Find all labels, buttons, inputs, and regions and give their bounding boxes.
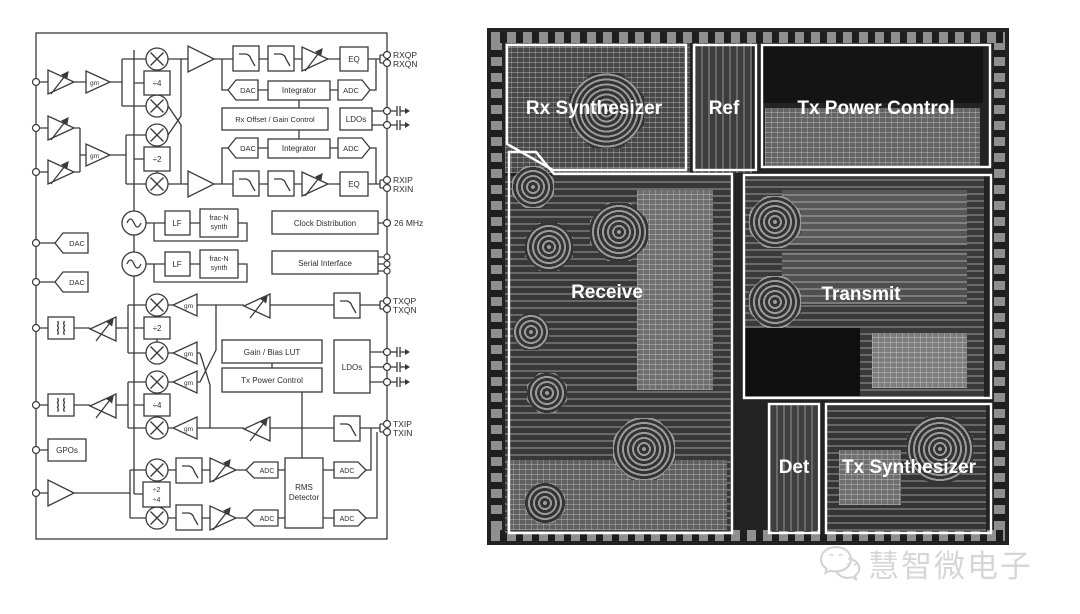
clock-distribution-block: Clock Distribution bbox=[272, 211, 378, 234]
divider-div2: ÷2 bbox=[144, 317, 170, 339]
svg-text:LF: LF bbox=[172, 260, 181, 269]
lowpass-filter-icon bbox=[334, 416, 360, 441]
svg-text:ADC: ADC bbox=[340, 468, 355, 475]
eq-block: EQ bbox=[340, 172, 368, 196]
lowpass-filter-icon bbox=[176, 505, 202, 530]
svg-text:ADC: ADC bbox=[340, 516, 355, 523]
svg-text:DAC: DAC bbox=[69, 278, 85, 287]
mixer-icon bbox=[146, 371, 168, 393]
vga-icon bbox=[90, 394, 116, 418]
svg-text:ADC: ADC bbox=[343, 86, 359, 95]
svg-text:Clock Distribution: Clock Distribution bbox=[294, 219, 356, 228]
lowpass-filter-icon bbox=[176, 458, 202, 483]
capacitor-icon bbox=[390, 106, 410, 116]
svg-text:Serial Interface: Serial Interface bbox=[298, 259, 352, 268]
watermark-text: 慧智微电子 bbox=[868, 541, 1033, 586]
svg-text:gm: gm bbox=[184, 351, 193, 358]
gpos-block: GPOs bbox=[48, 439, 86, 461]
mixer-icon bbox=[146, 48, 168, 70]
vga-icon bbox=[210, 506, 236, 530]
dac-block: DAC DAC bbox=[55, 233, 88, 292]
svg-text:÷2: ÷2 bbox=[153, 155, 162, 164]
die-region-overlay: Rx Synthesizer Ref Tx Power Control Rece… bbox=[487, 28, 1009, 545]
dac-block: DAC bbox=[228, 138, 258, 158]
mixer-icon bbox=[146, 459, 168, 481]
rx-offset-gain-control-block: Rx Offset / Gain Control bbox=[222, 108, 328, 130]
gain-bias-lut-block: Gain / Bias LUT bbox=[222, 340, 322, 363]
ldos-block: LDOs bbox=[334, 340, 370, 393]
vga-icon bbox=[90, 317, 116, 341]
lowpass-filter-icon bbox=[334, 293, 360, 318]
adc-block: ADC ADC bbox=[246, 462, 278, 526]
svg-text:ADC: ADC bbox=[260, 468, 275, 475]
svg-text:DAC: DAC bbox=[240, 86, 256, 95]
label-ref: Ref bbox=[709, 98, 740, 119]
label-transmit: Transmit bbox=[821, 284, 901, 305]
eq-block: EQ bbox=[340, 47, 368, 71]
tx-power-control-block: Tx Power Control bbox=[222, 368, 322, 392]
vga-icon bbox=[244, 294, 270, 318]
svg-text:Gain / Bias LUT: Gain / Bias LUT bbox=[244, 348, 301, 357]
divider-div2: ÷2 bbox=[144, 147, 170, 171]
lowpass-filter-icon bbox=[233, 171, 259, 196]
transceiver-block-diagram: gm gm ÷4 ÷2 EQ EQ DAC Integrator ADC bbox=[0, 0, 470, 614]
adc-block: ADC ADC bbox=[334, 462, 366, 526]
mixer-icon bbox=[146, 294, 168, 316]
vga-icon bbox=[48, 70, 74, 94]
svg-text:gm: gm bbox=[184, 303, 193, 310]
svg-text:Rx Offset / Gain Control: Rx Offset / Gain Control bbox=[235, 115, 315, 124]
vga-icon bbox=[302, 172, 328, 196]
label-tx-power-control: Tx Power Control bbox=[797, 98, 954, 119]
divider-div4: ÷4 bbox=[144, 71, 170, 95]
label-tx-synthesizer: Tx Synthesizer bbox=[842, 457, 977, 478]
svg-text:gm: gm bbox=[90, 153, 99, 160]
page: gm gm ÷4 ÷2 EQ EQ DAC Integrator ADC bbox=[0, 0, 1080, 614]
mixer-icon bbox=[146, 507, 168, 529]
die-photo: Rx Synthesizer Ref Tx Power Control Rece… bbox=[487, 28, 1009, 545]
svg-text:EQ: EQ bbox=[348, 55, 360, 64]
svg-text:EQ: EQ bbox=[348, 180, 360, 189]
svg-text:DAC: DAC bbox=[69, 239, 85, 248]
svg-text:gm: gm bbox=[184, 380, 193, 387]
amp-icon bbox=[48, 480, 74, 506]
capacitor-icon bbox=[390, 377, 410, 387]
divider-div4: ÷4 bbox=[144, 394, 170, 416]
wechat-icon bbox=[818, 543, 862, 585]
svg-text:LDOs: LDOs bbox=[346, 115, 366, 124]
vga-icon bbox=[302, 47, 328, 71]
capacitor-icon bbox=[390, 120, 410, 130]
watermark: 慧智微电子 bbox=[818, 541, 1033, 586]
svg-text:DAC: DAC bbox=[240, 144, 256, 153]
svg-text:Integrator: Integrator bbox=[282, 86, 317, 95]
oscillator-icon bbox=[122, 252, 146, 276]
svg-text:÷4: ÷4 bbox=[153, 79, 162, 88]
vga-icon bbox=[244, 417, 270, 441]
pin-rxin: RXIN bbox=[393, 184, 413, 194]
svg-text:ADC: ADC bbox=[343, 144, 359, 153]
amp-icon bbox=[188, 46, 214, 72]
svg-text:÷4: ÷4 bbox=[153, 401, 162, 410]
loop-filter-block: LF LF bbox=[165, 211, 190, 276]
transformer-icon bbox=[48, 394, 74, 416]
amp-icon bbox=[188, 171, 214, 197]
svg-text:gm: gm bbox=[184, 426, 193, 433]
capacitor-icon bbox=[390, 362, 410, 372]
svg-text:ADC: ADC bbox=[260, 516, 275, 523]
svg-text:Integrator: Integrator bbox=[282, 144, 317, 153]
rms-detector-block: RMSDetector bbox=[285, 458, 323, 528]
label-rx-synthesizer: Rx Synthesizer bbox=[526, 98, 663, 119]
integrator-block: Integrator bbox=[268, 139, 330, 158]
vga-icon bbox=[48, 160, 74, 184]
fracn-synth-block: frac-Nsynth frac-Nsynth bbox=[200, 209, 238, 278]
gm-amp: gm gm bbox=[86, 71, 110, 166]
lowpass-filter-icon bbox=[268, 171, 294, 196]
lowpass-filter-icon bbox=[268, 46, 294, 71]
pin-26mhz: 26 MHz bbox=[394, 218, 423, 228]
svg-text:gm: gm bbox=[90, 80, 99, 87]
capacitor-icon bbox=[390, 347, 410, 357]
dac-block: DAC bbox=[228, 80, 258, 100]
pin-rxqn: RXQN bbox=[393, 59, 418, 69]
svg-text:÷2: ÷2 bbox=[153, 324, 162, 333]
transformer-icon bbox=[48, 317, 74, 339]
pin-txqn: TXQN bbox=[393, 305, 417, 315]
svg-text:Tx Power Control: Tx Power Control bbox=[241, 376, 303, 385]
mixer-icon bbox=[146, 417, 168, 439]
lowpass-filter-icon bbox=[233, 46, 259, 71]
divider-div2-div4: ÷2÷4 bbox=[143, 482, 170, 507]
label-receive: Receive bbox=[571, 282, 643, 303]
label-det: Det bbox=[779, 457, 810, 478]
gm-amp: gm gm gm gm bbox=[173, 294, 197, 439]
svg-text:LF: LF bbox=[172, 219, 181, 228]
vga-icon bbox=[210, 458, 236, 482]
pin-txin: TXIN bbox=[393, 428, 412, 438]
mixer-icon bbox=[146, 124, 168, 146]
region-receive bbox=[509, 152, 732, 533]
mixer-icon bbox=[146, 173, 168, 195]
adc-block: ADC bbox=[338, 138, 370, 158]
vga-icon bbox=[48, 116, 74, 140]
ldos-block: LDOs bbox=[340, 108, 372, 130]
integrator-block: Integrator bbox=[268, 81, 330, 100]
oscillator-icon bbox=[122, 211, 146, 235]
svg-text:GPOs: GPOs bbox=[56, 446, 78, 455]
adc-block: ADC bbox=[338, 80, 370, 100]
mixer-icon bbox=[146, 95, 168, 117]
svg-text:LDOs: LDOs bbox=[342, 363, 362, 372]
mixer-icon bbox=[146, 342, 168, 364]
serial-interface-block: Serial Interface bbox=[272, 251, 378, 274]
